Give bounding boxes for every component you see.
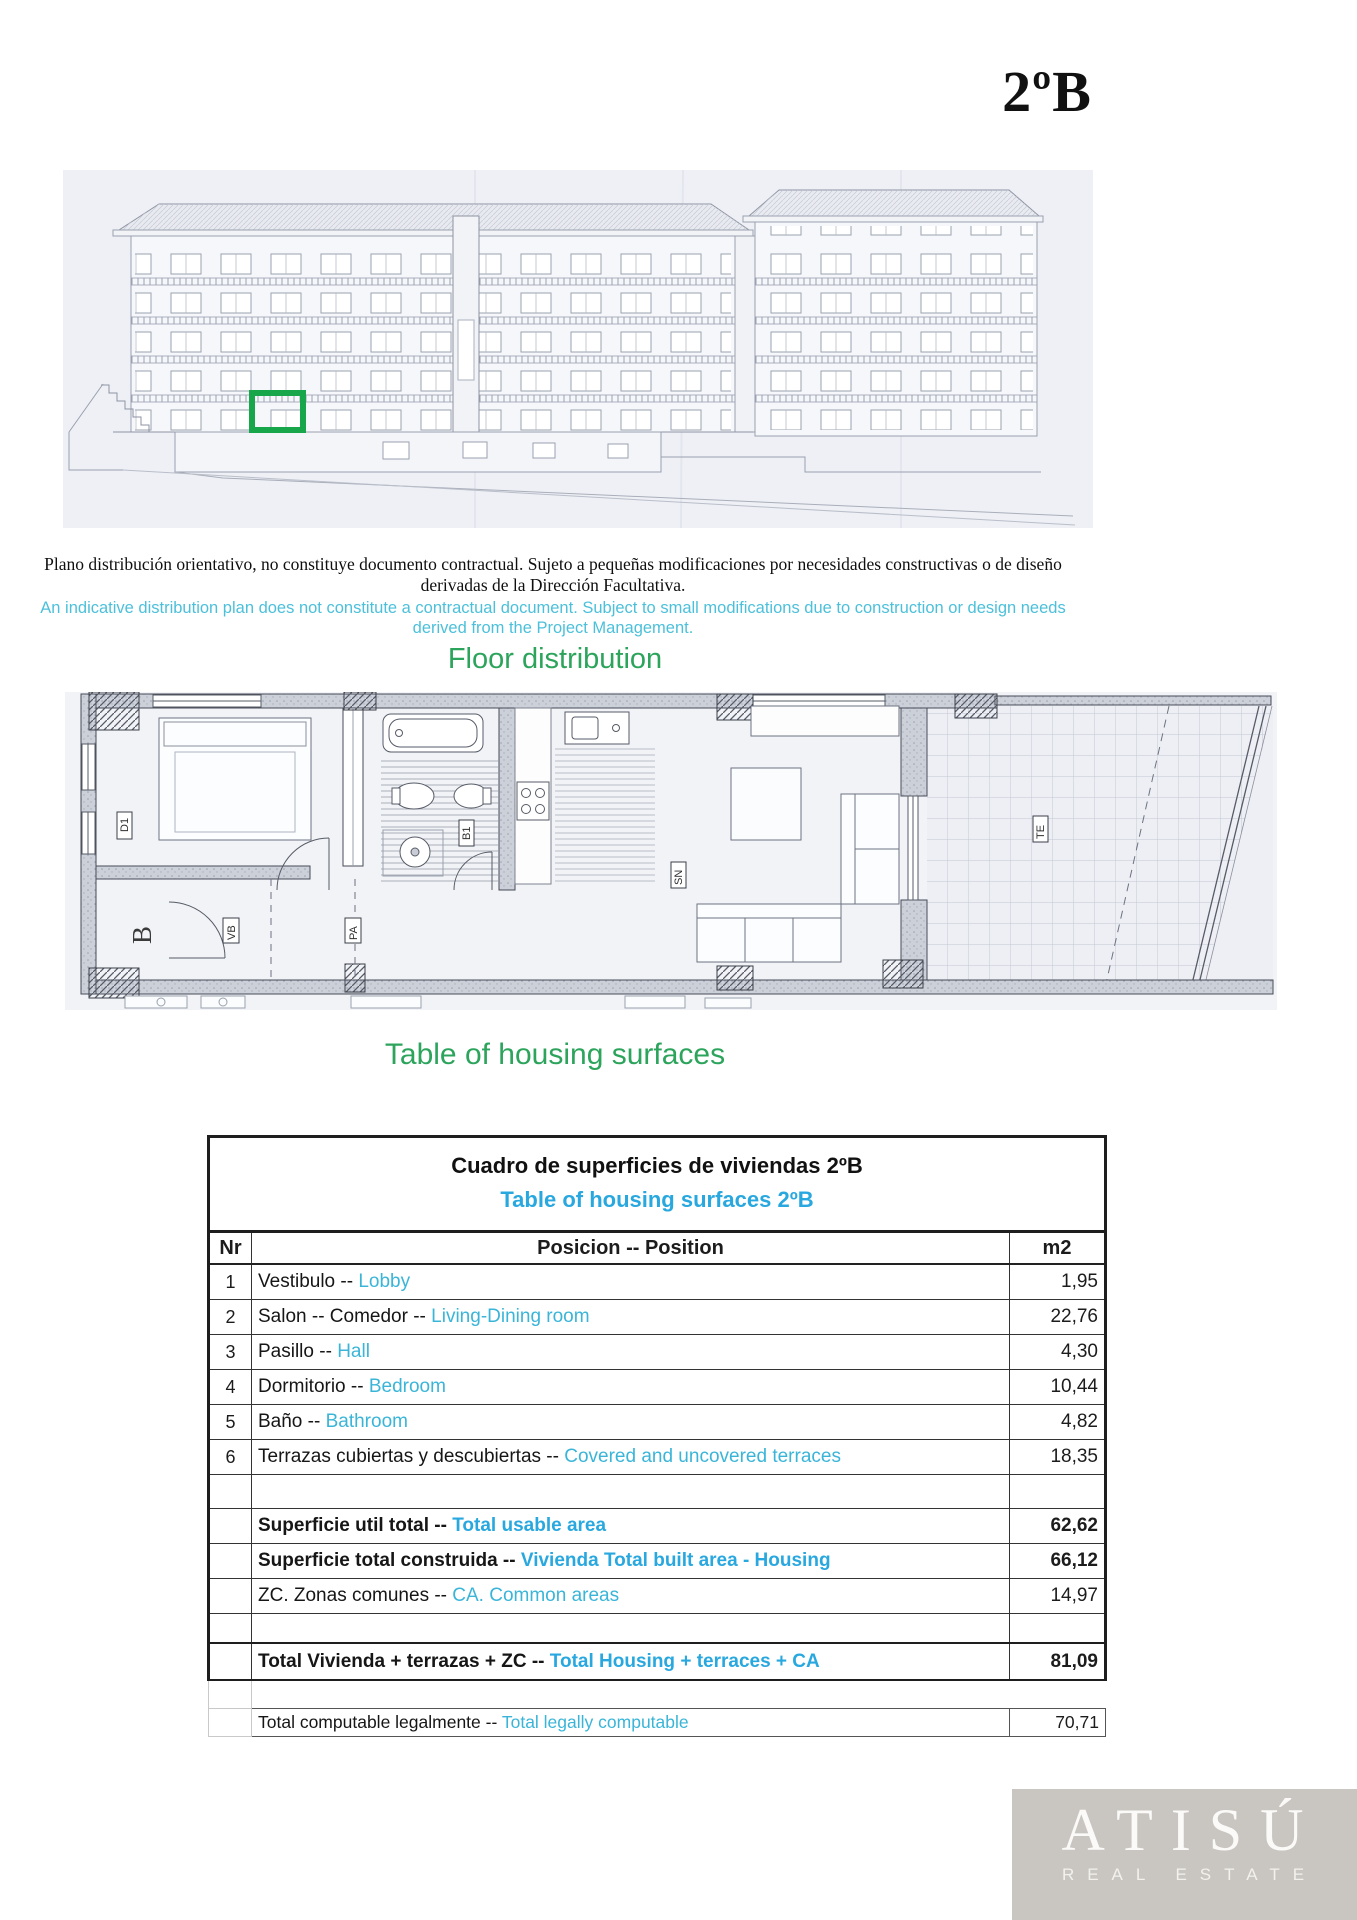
heading-floor-distribution: Floor distribution [0, 643, 1110, 676]
label-pa: PA [348, 925, 360, 940]
label-block-b: B [127, 926, 157, 944]
bathroom-fixtures [381, 714, 499, 886]
table-row: 6 Terrazas cubiertas y descubiertas -- C… [209, 1440, 1106, 1475]
label-sn: SN [673, 870, 685, 885]
floor-plan-drawing: D1 B1 VB PA SN TE B [65, 692, 1277, 1010]
label-b1: B1 [461, 827, 473, 840]
terrace-area [927, 706, 1273, 988]
terrace-glazing [908, 796, 918, 900]
col-header-position: Posicion -- Position [252, 1232, 1010, 1265]
gap-row [209, 1680, 1106, 1709]
label-te: TE [1035, 825, 1047, 839]
total-row: Total Vivienda + terrazas + ZC -- Total … [209, 1643, 1106, 1680]
brand-name: ATISÚ [1012, 1799, 1357, 1861]
document-page: 2ºB [0, 0, 1357, 1920]
col-header-nr: Nr [209, 1232, 252, 1265]
page-title: 2ºB [0, 58, 1092, 125]
table-title-en: Table of housing surfaces 2ºB [210, 1183, 1104, 1217]
table-header-row: Nr Posicion -- Position m2 [209, 1232, 1106, 1265]
table-row: 3 Pasillo -- Hall 4,30 [209, 1335, 1106, 1370]
table-row: 1 Vestibulo -- Lobby 1,95 [209, 1264, 1106, 1300]
brand-logo: ATISÚ REAL ESTATE [1012, 1789, 1357, 1920]
disclaimer-es: Plano distribución orientativo, no const… [30, 554, 1076, 596]
col-header-m2: m2 [1010, 1232, 1106, 1265]
label-vb: VB [226, 925, 238, 940]
heading-housing-surfaces: Table of housing surfaces [0, 1038, 1110, 1072]
label-d1: D1 [119, 818, 131, 832]
building-elevation-figure [63, 170, 1093, 528]
table-row: 4 Dormitorio -- Bedroom 10,44 [209, 1370, 1106, 1405]
brand-tagline: REAL ESTATE [1012, 1865, 1357, 1885]
table-row: 5 Baño -- Bathroom 4,82 [209, 1405, 1106, 1440]
building-elevation-drawing [63, 170, 1093, 528]
summary-row-common: ZC. Zonas comunes -- CA. Common areas 14… [209, 1579, 1106, 1614]
table-title-es: Cuadro de superficies de viviendas 2ºB [210, 1149, 1104, 1183]
summary-row-built: Superficie total construida -- Vivienda … [209, 1544, 1106, 1579]
bedroom-furniture [159, 718, 311, 840]
disclaimer-en: An indicative distribution plan does not… [30, 598, 1076, 638]
table-row: 2 Salon -- Comedor -- Living-Dining room… [209, 1300, 1106, 1335]
floor-plan-figure: D1 B1 VB PA SN TE B [65, 692, 1277, 1010]
spacer-row [209, 1614, 1106, 1644]
legal-total-row: Total computable legalmente -- Total leg… [209, 1709, 1106, 1737]
table-title-row: Cuadro de superficies de viviendas 2ºB T… [209, 1137, 1106, 1232]
surfaces-table: Cuadro de superficies de viviendas 2ºB T… [207, 1135, 1104, 1737]
summary-row-usable: Superficie util total -- Total usable ar… [209, 1509, 1106, 1544]
spacer-row [209, 1475, 1106, 1509]
